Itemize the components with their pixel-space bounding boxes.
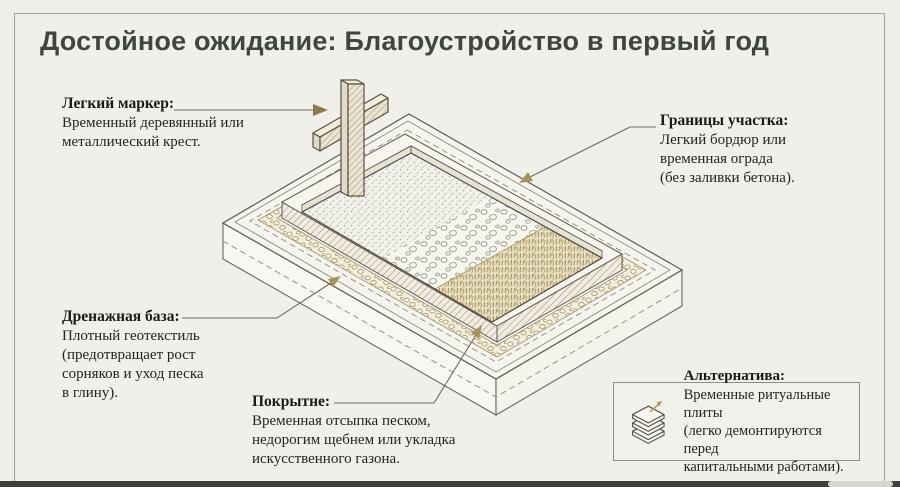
stacked-plates-icon <box>627 396 670 448</box>
bottom-edge-bar <box>0 481 900 487</box>
scrollbar-thumb[interactable] <box>828 481 893 487</box>
leader-line-boundaries <box>524 127 656 180</box>
callout-marker-text: Временный деревянный или <box>62 114 244 133</box>
callout-drainage: Дренажная база: Плотный геотекстиль (пре… <box>62 307 204 403</box>
callout-covering-title: Покрытне: <box>252 392 455 411</box>
callout-marker: Легкий маркер: Временный деревянный или … <box>62 94 244 152</box>
callout-drainage-text: (предотвращает рост <box>62 346 204 365</box>
callout-drainage-title: Дренажная база: <box>62 307 204 326</box>
callout-drainage-text: в глину). <box>62 384 204 403</box>
alternative-text: (легко демонтируются перед <box>684 422 859 458</box>
infographic-canvas: Достойное ожидание: Благоустройство в пе… <box>0 0 900 487</box>
arrowhead-icon <box>313 104 328 116</box>
callout-boundaries-text: временная ограда <box>660 150 795 169</box>
callout-covering-text: Временная отсыпка песком, <box>252 412 455 431</box>
callout-boundaries-text: Легкий бордюр или <box>660 131 795 150</box>
callout-marker-text: металлический крест. <box>62 133 244 152</box>
callout-boundaries-title: Границы участка: <box>660 111 795 130</box>
alternative-text: капитальными работами). <box>684 458 859 476</box>
callout-boundaries-text: (без заливки бетона). <box>660 169 795 188</box>
callout-boundaries: Границы участка: Легкий бордюр или време… <box>660 111 795 188</box>
callout-covering: Покрытне: Временная отсыпка песком, недо… <box>252 392 455 469</box>
alternative-text: Временные ритуальные плиты <box>684 386 859 422</box>
alternative-box: Альтернатива: Временные ритуальные плиты… <box>613 382 860 461</box>
alternative-title: Альтернатива: <box>684 367 859 385</box>
callout-drainage-text: Плотный геотекстиль <box>62 327 204 346</box>
callout-drainage-text: сорняков и уход песка <box>62 365 204 384</box>
callout-marker-title: Легкий маркер: <box>62 94 244 113</box>
callout-covering-text: недорогим щебнем или укладка <box>252 431 455 450</box>
callout-covering-text: искусственного газона. <box>252 450 455 469</box>
